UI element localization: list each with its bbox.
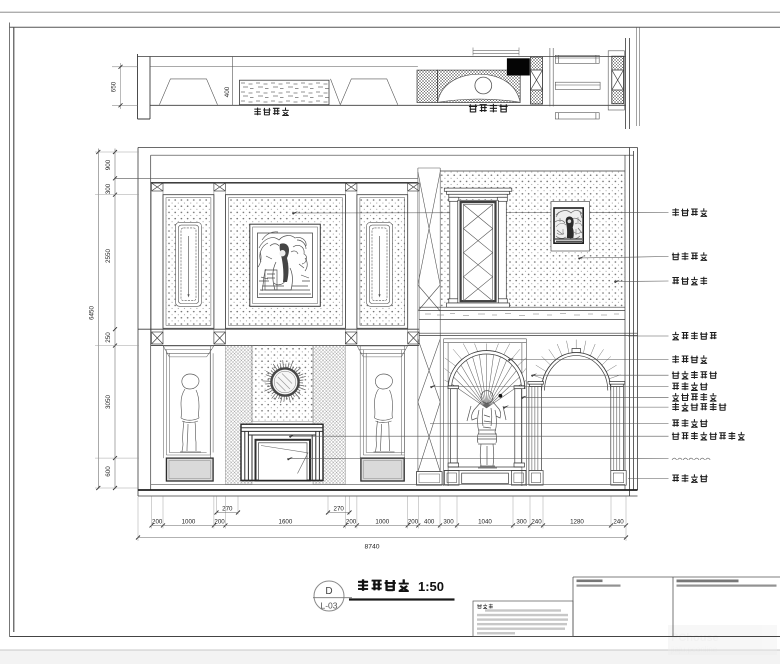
svg-text:6450: 6450 (89, 306, 96, 321)
svg-text:400: 400 (224, 86, 231, 97)
svg-text:1000: 1000 (182, 519, 196, 526)
svg-text:200: 200 (408, 519, 419, 526)
svg-text:1280: 1280 (570, 519, 584, 526)
svg-text:1:50: 1:50 (418, 579, 444, 594)
svg-text:300: 300 (105, 183, 112, 194)
svg-text:8740: 8740 (364, 544, 379, 551)
svg-text:jiaju.pconline: jiaju.pconline (670, 645, 718, 654)
svg-text:300: 300 (516, 519, 527, 526)
svg-text:3050: 3050 (105, 395, 112, 410)
svg-text:650: 650 (111, 81, 118, 92)
svg-text:1600: 1600 (279, 519, 293, 526)
svg-text:240: 240 (531, 519, 542, 526)
svg-text:900: 900 (105, 159, 112, 170)
svg-text:D: D (325, 586, 332, 597)
svg-text:270: 270 (222, 506, 233, 513)
svg-text:L-03: L-03 (320, 601, 337, 611)
svg-text:2550: 2550 (105, 249, 112, 264)
svg-text:1040: 1040 (478, 519, 492, 526)
svg-text:200: 200 (214, 519, 225, 526)
svg-text:250: 250 (105, 332, 112, 343)
svg-text:PChouse: PChouse (671, 632, 719, 644)
svg-text:200: 200 (152, 519, 163, 526)
svg-text:200: 200 (346, 519, 357, 526)
svg-text:400: 400 (424, 519, 435, 526)
svg-text:300: 300 (443, 519, 454, 526)
svg-text:1000: 1000 (375, 519, 389, 526)
svg-text:270: 270 (334, 506, 345, 513)
svg-text:600: 600 (105, 466, 112, 477)
svg-text:240: 240 (613, 519, 624, 526)
